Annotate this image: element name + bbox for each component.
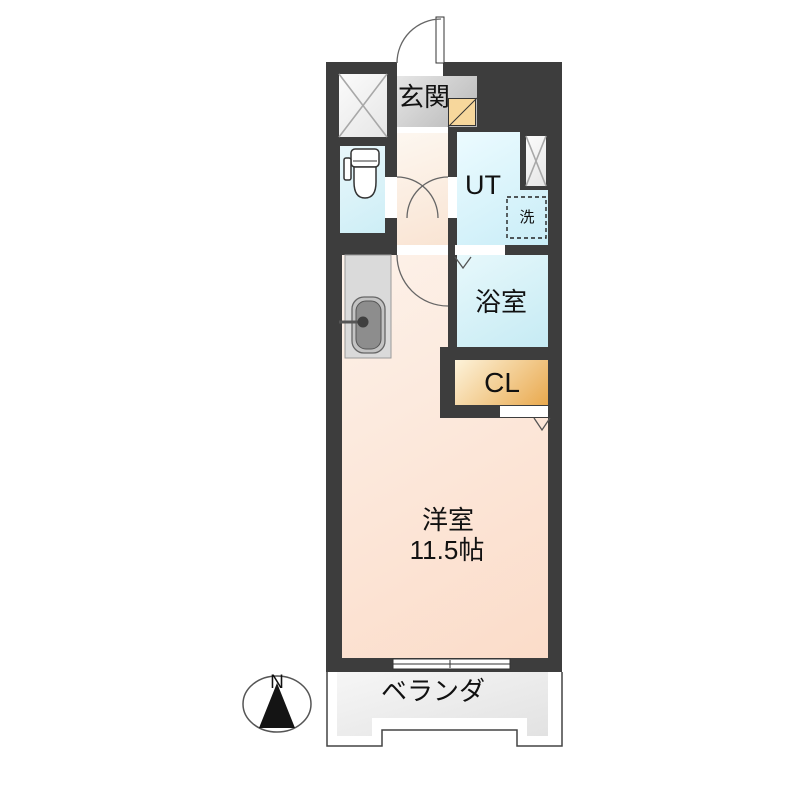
label-genkan: 玄関 [398, 84, 450, 110]
label-closet: CL [484, 369, 520, 397]
wall-bath-left [448, 255, 457, 347]
label-ut: UT [465, 172, 501, 199]
label-laundry: 洗 [519, 210, 534, 225]
label-room-name: 洋室 [422, 507, 474, 533]
label-bath: 浴室 [475, 289, 527, 315]
wall-right [548, 62, 562, 672]
entrance-door-leaf [436, 17, 444, 63]
wall-toilet-bottom [326, 233, 397, 255]
opening-bath-door [455, 245, 505, 255]
opening-closet-door [500, 406, 548, 417]
opening-main-room-door [397, 245, 448, 255]
opening-utility-door [448, 177, 457, 218]
wall-bath-closet [440, 347, 548, 360]
label-veranda: ベランダ [381, 678, 485, 704]
pipe-shaft-box-left [339, 74, 387, 137]
toilet-room-floor [340, 146, 385, 233]
floor-plan-canvas: 玄関 UT 洗 浴室 CL 洋室 11.5帖 ベランダ N [0, 0, 800, 800]
shoe-cabinet [448, 98, 476, 126]
wall-bottom [326, 658, 562, 672]
label-compass-north: N [270, 673, 284, 692]
pipe-shaft-box-right [526, 136, 546, 186]
opening-toilet-door [385, 177, 397, 218]
label-room-size: 11.5帖 [410, 537, 485, 563]
entrance-door-arc [397, 19, 441, 63]
opening-entrance-door [397, 62, 443, 76]
hallway-floor [397, 133, 448, 245]
